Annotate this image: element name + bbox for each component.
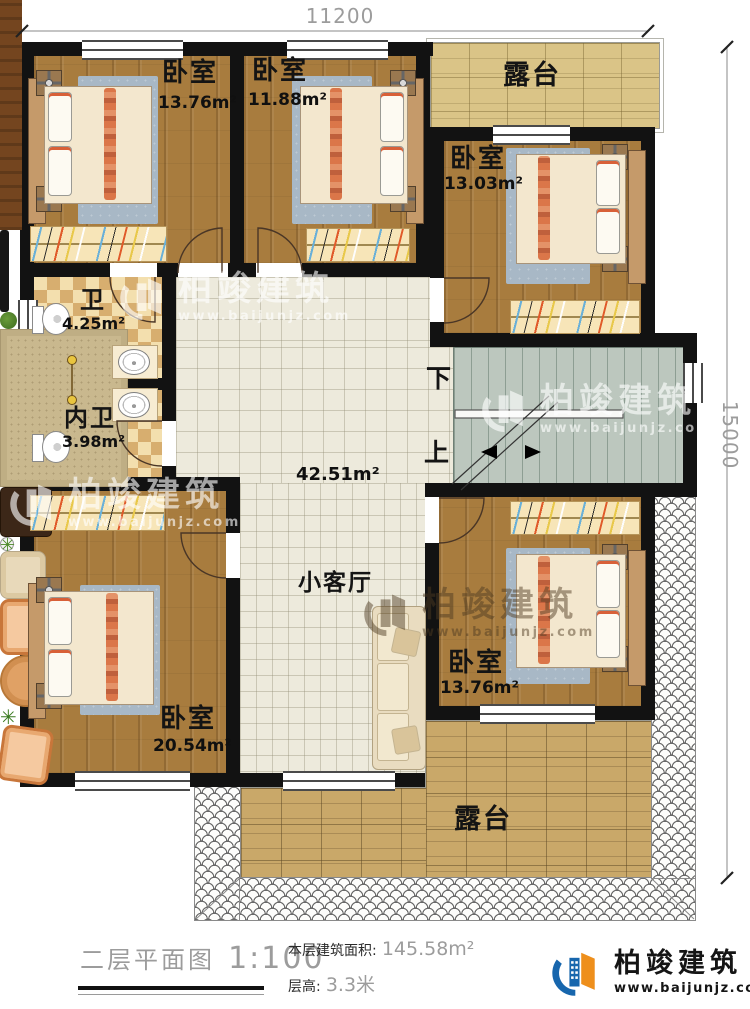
hall-floor — [176, 347, 453, 483]
tv-cabinet — [0, 0, 22, 230]
stairs-up-label: 上 — [424, 440, 451, 465]
floor-height-row: 层高: 3.3米 — [288, 970, 375, 997]
floor-area-label: 本层建筑面积: — [288, 943, 377, 959]
window — [480, 704, 595, 724]
roof-tiles-right — [652, 497, 695, 878]
wardrobe — [510, 501, 640, 535]
floor-area-row: 本层建筑面积: 145.58m² — [288, 938, 474, 960]
bed-blanket — [330, 88, 342, 200]
furniture: ✳ ✳ — [0, 0, 128, 783]
room-label-bedroom-tr: 卧室 — [450, 146, 506, 172]
brand-logo: 柏竣建筑 www.baijunjz.com — [550, 946, 750, 1000]
room-label-bedroom-br: 卧室 — [448, 650, 504, 676]
bed-pillow — [380, 146, 404, 196]
room-label-terrace-top: 露台 — [503, 62, 561, 89]
wardrobe — [510, 300, 640, 334]
bed-pillow — [596, 160, 620, 206]
plan-title: 二层平面图 — [80, 946, 215, 974]
terrace-bottom-floor — [425, 720, 654, 880]
room-area-bedroom-tr: 13.03m² — [444, 176, 523, 193]
wall-segment — [430, 127, 444, 278]
wall-segment — [683, 333, 697, 363]
room-area-bath: 4.25m² — [62, 316, 125, 332]
sofa-cushion — [377, 663, 409, 711]
room-label-bath: 卫 — [80, 288, 106, 312]
room-area-bedroom-br: 13.76m² — [440, 680, 519, 697]
wardrobe — [30, 495, 165, 531]
room-label-bedroom-tl: 卧室 — [162, 60, 218, 86]
bed-pillow — [48, 597, 72, 645]
bed-pillow — [596, 560, 620, 608]
sink — [118, 349, 150, 375]
wall-segment — [425, 483, 697, 497]
wardrobe — [306, 228, 410, 262]
room-area-hall: 42.51m² — [296, 466, 380, 484]
sofa-pillow — [391, 627, 422, 658]
bed-pillow — [48, 146, 72, 196]
bed-headboard — [628, 550, 646, 686]
wall-segment — [425, 706, 480, 720]
window — [283, 771, 395, 791]
wall-segment — [425, 543, 439, 720]
window — [683, 363, 703, 403]
brand-logo-icon — [550, 946, 604, 1000]
room-label-terrace-bottom: 露台 — [454, 806, 512, 833]
wall-segment — [228, 263, 256, 277]
bed-pillow — [48, 649, 72, 697]
bed-pillow — [596, 208, 620, 254]
brand-name: 柏竣建筑 — [614, 950, 750, 977]
tv — [0, 230, 9, 312]
bed-pillow — [380, 92, 404, 142]
stairs-down-label: 下 — [426, 366, 453, 391]
sofa — [372, 606, 426, 770]
brand-url: www.baijunjz.com — [614, 981, 750, 996]
terrace-chair — [0, 724, 55, 787]
floor-height-label: 层高: — [288, 979, 321, 995]
room-label-inner-bath: 内卫 — [64, 406, 116, 430]
wall-segment — [430, 127, 493, 141]
wall-segment — [162, 263, 176, 421]
roof-tiles-left — [195, 787, 240, 920]
wall-segment — [595, 706, 655, 720]
wall-segment — [302, 263, 430, 277]
bed-blanket — [538, 156, 550, 260]
plan-title-underline — [78, 986, 264, 990]
bed-blanket — [538, 556, 550, 664]
terrace-bottom-floor — [240, 787, 426, 880]
sink — [118, 392, 150, 418]
wardrobe — [30, 226, 167, 262]
dimension-width: 11200 — [300, 4, 380, 28]
window — [493, 125, 570, 145]
plant — [0, 312, 17, 329]
hall-floor — [176, 277, 430, 347]
sofa-pillow — [391, 725, 421, 755]
room-label-living: 小客厅 — [298, 572, 373, 595]
wall-segment — [430, 333, 697, 347]
bed-blanket — [106, 593, 118, 701]
floor-area-value: 145.58m² — [382, 938, 475, 960]
room-area-bedroom-tm: 11.88m² — [248, 92, 327, 109]
room-area-bedroom-tl: 13.76m² — [158, 95, 237, 112]
dimension-height: 15000 — [718, 393, 742, 477]
wall-segment — [226, 477, 240, 533]
floor-height-value: 3.3米 — [326, 974, 375, 996]
room-label-bedroom-bl: 卧室 — [160, 706, 216, 732]
stairs-floor — [453, 347, 685, 485]
bed-pillow — [596, 610, 620, 658]
room-label-bedroom-tm: 卧室 — [252, 58, 308, 84]
bed-blanket — [104, 88, 116, 200]
wall-segment — [226, 773, 283, 787]
wall-segment — [230, 42, 244, 263]
roof-tiles-bottom — [240, 878, 695, 920]
wall-segment — [395, 773, 425, 787]
floor-plan: ✳ ✳ — [0, 0, 750, 1009]
bed-headboard — [628, 150, 646, 284]
room-area-inner-bath: 3.98m² — [62, 434, 125, 450]
plan-title-underline-thin — [78, 994, 264, 995]
bed-pillow — [48, 92, 72, 142]
room-area-bedroom-bl: 20.54m² — [153, 738, 232, 755]
